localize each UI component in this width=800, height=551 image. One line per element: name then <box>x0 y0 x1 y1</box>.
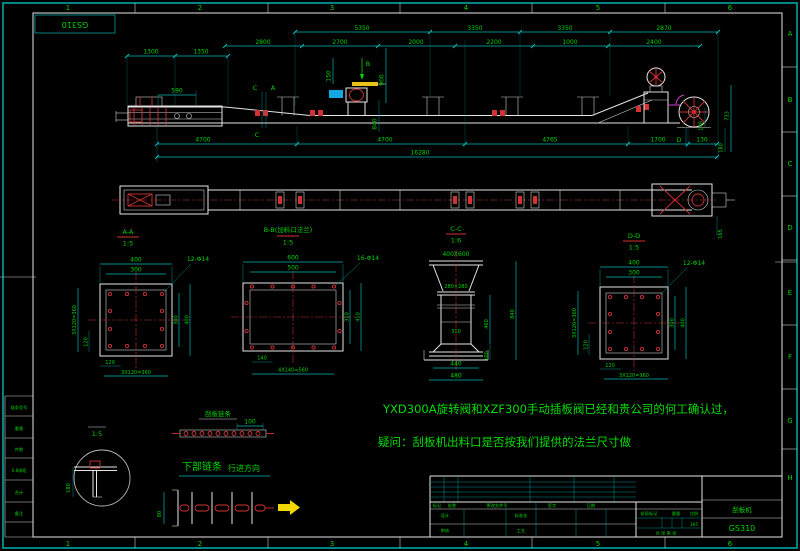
annotation-notes: YXD300A旋转阀和XZF300手动插板阀已经和贵公司的何工确认过， 疑问：刮… <box>378 402 734 449</box>
dim-text: 148 <box>699 121 705 131</box>
dim-text: 120 <box>584 340 590 350</box>
dim-text: 5350 <box>354 25 369 32</box>
zone-number: 3 <box>330 4 334 12</box>
dim-text: 400 <box>681 318 687 328</box>
dim-text: 600 <box>287 255 299 262</box>
zone-number: 3 <box>330 540 334 548</box>
dim-text: 100 <box>484 351 490 361</box>
dim-text: 150 <box>326 70 333 82</box>
section-mark: A <box>271 84 276 92</box>
dim-text: 4X140=560 <box>278 368 308 374</box>
zone-letter: B <box>788 96 793 104</box>
dim-text: 2700 <box>332 39 347 46</box>
section-dd: D-D 1:5 400 300 12-Φ14 300 400 3X120=360… <box>572 232 705 379</box>
cell-std: 标准化 <box>515 512 528 519</box>
rev-header: 更改文件号 <box>487 502 508 509</box>
dim-text: 2400 <box>646 39 661 46</box>
dim-text: 3X120=360 <box>619 373 649 379</box>
dim-text: 130 <box>696 137 708 144</box>
cell-stage: 阶段标记 <box>641 510 659 517</box>
dim-text: 4700 <box>377 137 392 144</box>
dim-text: 300 <box>174 315 180 325</box>
feed-valve-assembly <box>329 82 386 116</box>
section-scale: 1:5 <box>283 239 293 247</box>
dim-text: 2000 <box>408 39 423 46</box>
zone-letter: F <box>788 353 792 361</box>
dim-text: 410 <box>356 312 362 322</box>
dim-text: 3X120=360 <box>572 308 578 338</box>
note-line-2: 疑问：刮板机出料口是否按我们提供的法兰尺寸做 <box>378 435 631 449</box>
section-mark: C <box>253 84 258 92</box>
travel-direction-label: 行进方向 <box>228 463 260 473</box>
drive-head <box>644 68 711 128</box>
zone-number: 1 <box>66 540 70 548</box>
dim-text: 3X120=360 <box>121 370 151 376</box>
parts-row: 重量 <box>15 425 23 432</box>
zone-letter: H <box>787 474 792 482</box>
note-line-1: YXD300A旋转阀和XZF300手动插板阀已经和贵公司的何工确认过， <box>382 402 734 416</box>
section-mark: B <box>366 60 370 68</box>
title-block: 标记 处数 更改文件号 签字 日期 设计 审核 标准化 工艺 阶段标记 重量 比… <box>430 476 782 537</box>
dim-text: 3350 <box>467 25 482 32</box>
dim-text: 120 <box>605 363 615 369</box>
section-aa: A-A 1:5 400 300 12-Φ14 300 400 3X120=360… <box>72 228 209 376</box>
sheet-code-inverted: GS310 <box>62 20 89 29</box>
direction-arrow <box>278 500 300 515</box>
elevation-dims-row3: 1300 1350 <box>125 49 230 106</box>
rev-header: 日期 <box>587 503 595 509</box>
dim-text: 400 <box>185 315 191 325</box>
cell-craft: 工艺 <box>517 528 525 533</box>
dim-text: 300 <box>670 318 676 328</box>
zone-letter: G <box>787 417 792 425</box>
dim-text: 900 <box>379 74 386 86</box>
section-scale: 1:5 <box>629 244 639 252</box>
section-cc: C-C 1:6 400X600 280×280 310 440 480 460 … <box>424 225 516 380</box>
rev-header: 标记 <box>433 502 442 509</box>
zone-letter: A <box>788 30 793 38</box>
parts-row: 合计 <box>15 489 23 496</box>
dim-text: 140 <box>257 356 267 362</box>
dim-text: 733 <box>725 111 731 121</box>
holes-callout: 12-Φ14 <box>187 256 209 263</box>
dim-text: 2800 <box>255 39 270 46</box>
parts-row: 备注 <box>15 510 24 517</box>
dim-text: 840 <box>510 309 516 319</box>
section-title: B-B(加料口法兰) <box>264 225 313 234</box>
dim-text: 300 <box>130 267 142 274</box>
dim-text: 300 <box>628 270 640 277</box>
trough-clamps <box>255 104 649 116</box>
zone-number: 5 <box>596 540 600 548</box>
tensioner-detail: 1:5 180 <box>66 427 130 506</box>
dim-text: 4765 <box>542 137 557 144</box>
section-scale: 1:6 <box>451 237 461 245</box>
zone-letter: C <box>788 160 793 168</box>
zone-number: 4 <box>464 4 469 12</box>
dim-text: 180 <box>66 483 72 493</box>
cell-sheets: 共 张 第 张 <box>656 530 678 537</box>
dim-text: 1700 <box>650 137 665 144</box>
cell-check: 审核 <box>441 527 450 534</box>
scraper-chain-detail: 刮板链条 100 <box>172 409 274 437</box>
section-title: C-C <box>450 225 462 233</box>
parts-row: 0.8排距 <box>11 467 26 474</box>
dim-text: 500 <box>287 265 299 272</box>
section-mark: C <box>255 131 260 139</box>
elevation-dims-bottom: 4700 4700 4765 1700 130 16280 <box>155 40 719 162</box>
cell-scale: 比例 <box>690 510 698 517</box>
dim-text: 4700 <box>195 137 210 144</box>
dim-text: 180 <box>719 143 725 153</box>
section-title: A-A <box>123 228 135 236</box>
dim-text: 480 <box>450 373 462 380</box>
dim-text: 400 <box>628 260 640 267</box>
cad-canvas: 1 2 3 4 5 6 1 2 3 4 5 6 A B C D E F G H … <box>0 0 800 551</box>
zone-number: 6 <box>728 4 733 12</box>
lower-chain-detail: 下部链条 行进方向 80 <box>157 460 300 526</box>
dim-text: 840 <box>372 118 379 130</box>
parts-row: 链条型号 <box>11 404 28 411</box>
detail-scale: 1:5 <box>92 430 102 438</box>
dim-text: 2200 <box>486 39 501 46</box>
zone-number: 1 <box>66 4 70 12</box>
section-title: D-D <box>628 232 640 240</box>
section-scale: 1:5 <box>123 240 133 248</box>
dim-text: 590 <box>171 88 183 95</box>
rev-header: 签字 <box>548 502 556 508</box>
dim-text: 120 <box>84 337 90 347</box>
dim-text: 80 <box>157 511 163 517</box>
zone-letter: E <box>788 289 792 297</box>
rotary-valve-symbol <box>329 90 343 98</box>
dim-text: 310 <box>345 312 351 322</box>
plan-view: 165 <box>112 184 735 239</box>
dim-text: 3X120=360 <box>72 305 78 335</box>
cell-weight-value: 365 <box>690 522 698 527</box>
drawing-code: GS310 <box>729 524 756 533</box>
dim-text: 100 <box>244 419 256 426</box>
cad-drawing-sheet: 1 2 3 4 5 6 1 2 3 4 5 6 A B C D E F G H … <box>0 0 800 551</box>
zone-number: 6 <box>728 540 733 548</box>
dim-text: 440 <box>450 361 462 368</box>
cell-design: 设计 <box>441 512 449 519</box>
dim-text: 3350 <box>557 25 572 32</box>
rev-header: 处数 <box>448 502 457 509</box>
lower-chain-label: 下部链条 <box>182 460 222 473</box>
cell-weight: 重量 <box>672 510 680 517</box>
holes-callout: 16-Φ14 <box>357 255 379 262</box>
zone-number: 2 <box>198 4 202 12</box>
dim-text: 1300 <box>143 49 158 56</box>
zone-number: 5 <box>596 4 600 12</box>
elevation-view: C A C B D 5350 3350 3350 2870 <box>116 25 731 162</box>
dim-text: 1000 <box>562 39 577 46</box>
parts-row: 件数 <box>15 446 24 453</box>
sheet-frame: 1 2 3 4 5 6 1 2 3 4 5 6 A B C D E F G H … <box>0 3 797 548</box>
section-bb: B-B(加料口法兰) 1:5 600 500 16-Φ14 310 410 14… <box>231 225 379 374</box>
dim-text: 400 <box>130 257 142 264</box>
zone-number: 2 <box>198 540 202 548</box>
dim-text: 165 <box>718 229 724 239</box>
parts-table: 链条型号 重量 件数 0.8排距 合计 备注 <box>5 396 33 537</box>
dim-text: 460 <box>484 319 490 329</box>
slide-valve-handle <box>352 82 378 86</box>
section-mark: D <box>676 136 681 144</box>
holes-callout: 12-Φ14 <box>683 260 705 267</box>
dim-text: 1350 <box>193 49 208 56</box>
dim-text: 120 <box>105 360 115 366</box>
product-name: 刮板机 <box>732 505 752 514</box>
dim-text: 16280 <box>410 150 429 157</box>
zone-number: 4 <box>464 540 469 548</box>
zone-letter: D <box>787 224 792 232</box>
chain-title: 刮板链条 <box>205 409 232 418</box>
dim-text: 2870 <box>656 25 671 32</box>
